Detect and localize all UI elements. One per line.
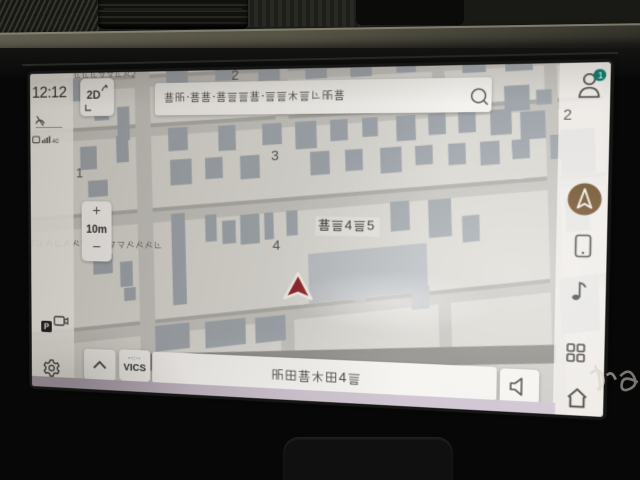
svg-text:4: 4	[273, 237, 281, 253]
svg-text:3: 3	[271, 147, 279, 163]
svg-text:1: 1	[598, 70, 604, 81]
svg-text:2: 2	[131, 70, 136, 80]
svg-text:2: 2	[231, 67, 239, 83]
svg-text:4: 4	[339, 370, 347, 386]
svg-text:1: 1	[76, 165, 83, 181]
svg-text:4G: 4G	[52, 139, 59, 145]
svg-text:5: 5	[367, 218, 375, 234]
svg-text:4: 4	[345, 217, 353, 233]
